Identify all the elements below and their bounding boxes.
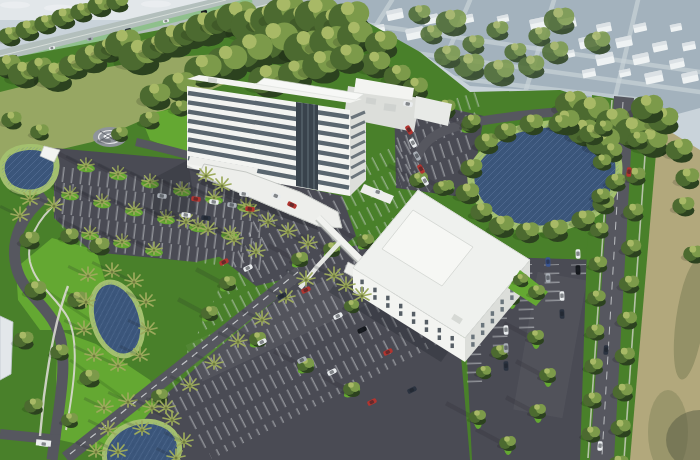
palm-tree-icon xyxy=(229,333,247,347)
car xyxy=(626,167,632,177)
palm-tree-icon xyxy=(299,235,317,249)
window xyxy=(386,303,389,308)
car xyxy=(603,345,609,355)
palm-tree-icon xyxy=(109,443,127,457)
window xyxy=(425,320,428,325)
car xyxy=(559,309,564,319)
aerial-rendering: Aerial architectural rendering of a hosp… xyxy=(0,0,700,460)
window xyxy=(471,335,474,340)
palm-tree-icon xyxy=(77,293,95,307)
window xyxy=(491,319,494,324)
palm-tree-icon xyxy=(205,355,223,369)
window xyxy=(360,280,363,285)
car xyxy=(503,343,508,353)
palm-tree-icon xyxy=(297,271,315,285)
window xyxy=(481,330,484,335)
palm-tree-icon xyxy=(79,267,97,281)
palm-tree-icon xyxy=(353,287,371,301)
palm-tree-icon xyxy=(157,399,175,413)
window xyxy=(451,343,454,348)
window xyxy=(412,312,415,317)
car xyxy=(503,361,508,371)
window xyxy=(481,323,484,328)
window xyxy=(399,304,402,309)
palm-tree-icon xyxy=(95,399,113,413)
palm-tree-icon xyxy=(75,321,93,335)
window xyxy=(500,307,503,312)
window xyxy=(373,288,376,293)
window xyxy=(386,296,389,301)
window xyxy=(399,311,402,316)
palm-tree-icon xyxy=(146,242,162,255)
window xyxy=(373,295,376,300)
palm-tree-icon xyxy=(137,293,155,307)
palm-tree-icon xyxy=(133,421,151,435)
palm-tree-icon xyxy=(11,207,29,221)
glass-curtain-wall xyxy=(296,102,318,190)
car xyxy=(597,441,603,451)
car xyxy=(545,273,550,283)
palm-tree-icon xyxy=(109,357,127,371)
window xyxy=(412,319,415,324)
distant-building xyxy=(0,1,30,8)
palm-tree-icon xyxy=(197,167,215,181)
palm-tree-icon xyxy=(253,311,271,325)
window xyxy=(500,300,503,305)
window xyxy=(451,336,454,341)
palm-tree-icon xyxy=(213,177,231,191)
rendering-canvas: Aerial architectural rendering of a hosp… xyxy=(0,0,700,460)
palm-tree-icon xyxy=(45,197,63,211)
distant-building xyxy=(141,0,171,7)
palm-tree-icon xyxy=(139,321,157,335)
palm-tree-icon xyxy=(175,433,193,447)
palm-tree-icon xyxy=(181,377,199,391)
window xyxy=(425,327,428,332)
palm-tree-icon xyxy=(247,243,265,257)
palm-tree-icon xyxy=(199,221,217,235)
window xyxy=(471,342,474,347)
car xyxy=(39,441,49,447)
access-road xyxy=(0,434,60,440)
window xyxy=(510,295,513,300)
car xyxy=(503,325,508,335)
car xyxy=(545,257,550,267)
palm-tree-icon xyxy=(325,267,343,281)
window xyxy=(491,311,494,316)
car xyxy=(575,249,580,259)
window xyxy=(438,328,441,333)
window xyxy=(438,335,441,340)
palm-tree-icon xyxy=(131,347,149,361)
edge-building xyxy=(0,316,13,380)
car xyxy=(575,265,580,275)
palm-tree-icon xyxy=(85,347,103,361)
car xyxy=(559,291,564,301)
palm-tree-icon xyxy=(99,421,117,435)
palm-tree-icon xyxy=(125,273,143,287)
helicopter-shadow xyxy=(97,138,111,143)
